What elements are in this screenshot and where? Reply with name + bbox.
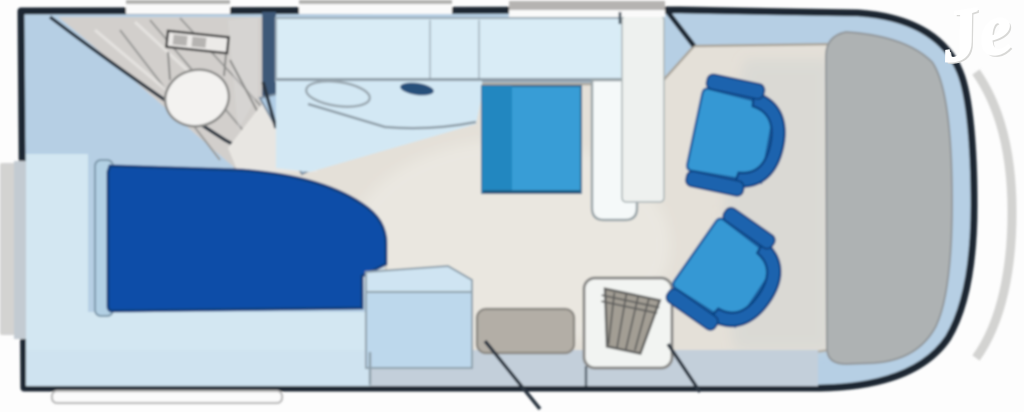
svg-text:Je: Je [935,0,1018,79]
